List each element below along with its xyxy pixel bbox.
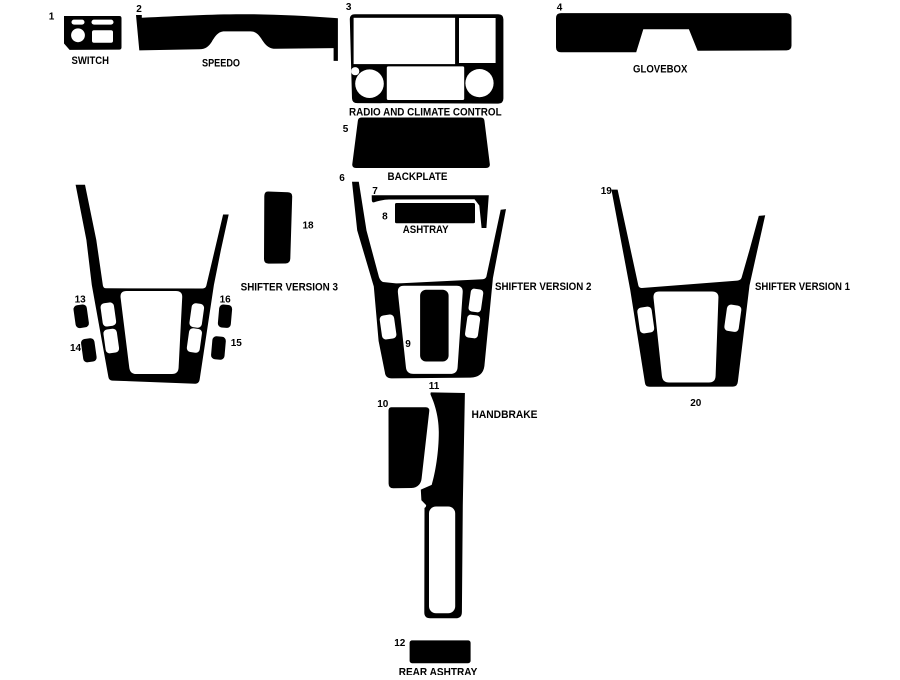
svg-text:13: 13 xyxy=(75,294,87,305)
svg-text:18: 18 xyxy=(302,220,314,231)
svg-text:ASHTRAY: ASHTRAY xyxy=(403,224,449,236)
svg-text:SPEEDO: SPEEDO xyxy=(202,58,240,70)
svg-text:SHIFTER VERSION 3: SHIFTER VERSION 3 xyxy=(241,282,338,294)
svg-text:4: 4 xyxy=(557,3,563,14)
svg-text:SHIFTER VERSION 2: SHIFTER VERSION 2 xyxy=(495,281,592,293)
svg-text:BACKPLATE: BACKPLATE xyxy=(388,171,448,183)
svg-text:11: 11 xyxy=(429,381,440,392)
svg-text:20: 20 xyxy=(690,398,702,409)
svg-text:RADIO AND CLIMATE CONTROL: RADIO AND CLIMATE CONTROL xyxy=(349,107,502,119)
svg-text:16: 16 xyxy=(220,294,232,305)
svg-text:2: 2 xyxy=(136,4,142,15)
svg-text:1: 1 xyxy=(49,12,55,23)
svg-text:14: 14 xyxy=(70,343,82,354)
svg-text:5: 5 xyxy=(343,124,349,135)
svg-text:REAR ASHTRAY: REAR ASHTRAY xyxy=(399,667,478,676)
svg-text:SHIFTER VERSION 1: SHIFTER VERSION 1 xyxy=(755,281,850,293)
svg-text:8: 8 xyxy=(382,212,388,223)
svg-text:6: 6 xyxy=(339,173,345,184)
svg-text:9: 9 xyxy=(405,339,411,350)
svg-text:SWITCH: SWITCH xyxy=(72,55,110,67)
svg-text:12: 12 xyxy=(394,638,406,649)
svg-text:3: 3 xyxy=(346,2,352,13)
svg-text:10: 10 xyxy=(377,399,389,410)
svg-text:GLOVEBOX: GLOVEBOX xyxy=(633,63,688,75)
svg-text:15: 15 xyxy=(231,338,243,349)
svg-text:HANDBRAKE: HANDBRAKE xyxy=(472,409,538,421)
svg-text:19: 19 xyxy=(601,186,613,197)
